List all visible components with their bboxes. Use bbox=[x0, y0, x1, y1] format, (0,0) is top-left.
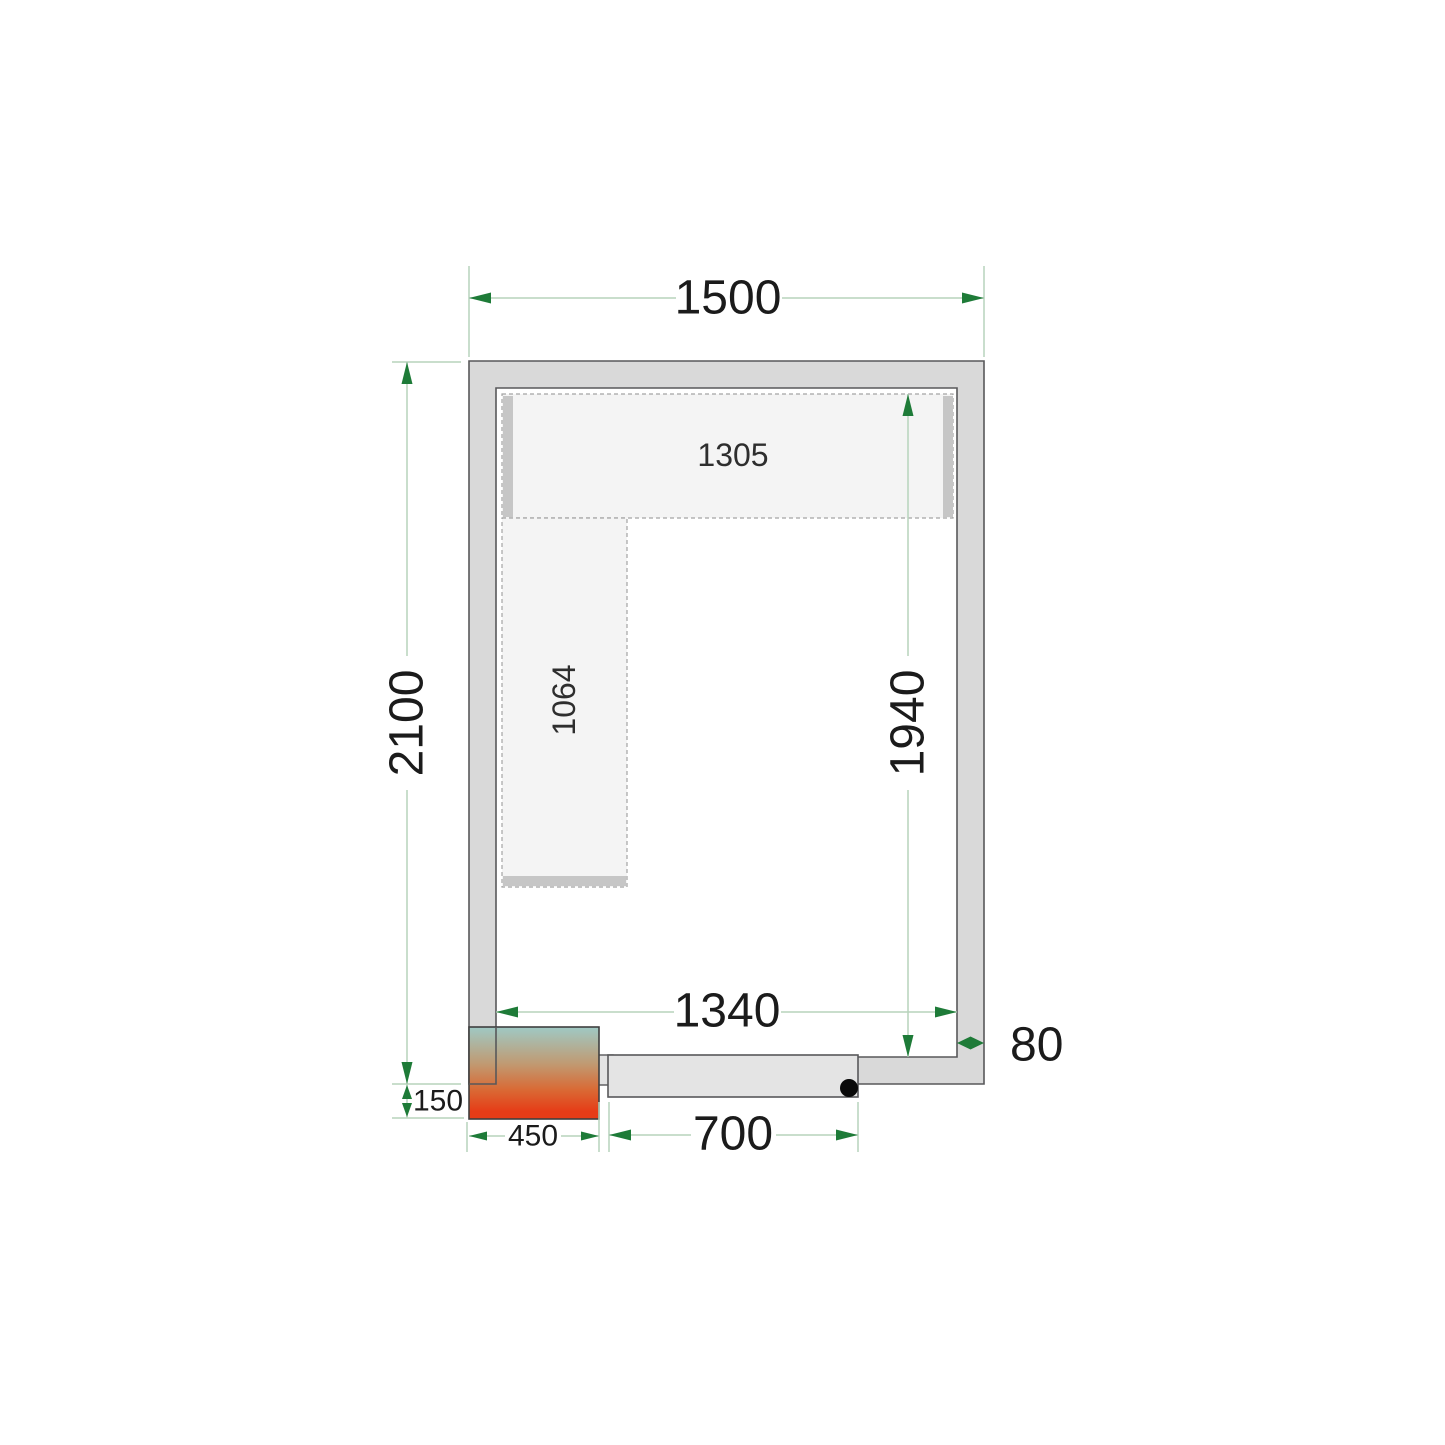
arrowhead-down-icon bbox=[903, 1035, 914, 1057]
arrowhead-right-icon bbox=[962, 293, 984, 304]
arrowhead-right-icon bbox=[581, 1132, 599, 1141]
side-shelf-support-bar bbox=[503, 876, 626, 886]
arrowhead-left-icon bbox=[469, 293, 491, 304]
arrowhead-down-icon bbox=[402, 1103, 412, 1117]
arrowhead-right-icon bbox=[836, 1130, 858, 1141]
arrowhead-up-icon bbox=[402, 1085, 412, 1099]
door-leaf bbox=[608, 1055, 858, 1097]
dim-outer-height-label: 2100 bbox=[381, 670, 434, 777]
arrowhead-down-icon bbox=[402, 1062, 413, 1084]
floor-plan-svg: 1500 2100 1340 1940 80 150 bbox=[0, 0, 1445, 1445]
door-hinge-dot bbox=[840, 1079, 858, 1097]
top-shelf-left-support-bar bbox=[503, 396, 513, 517]
dim-inner-height-label: 1940 bbox=[882, 670, 935, 777]
top-shelf-right-support-bar bbox=[943, 396, 953, 517]
floor-plan-canvas: 1500 2100 1340 1940 80 150 bbox=[0, 0, 1445, 1445]
dim-wall-thickness-label: 80 bbox=[1010, 1019, 1063, 1072]
cooling-unit-block bbox=[469, 1027, 599, 1119]
dim-outer-width-label: 1500 bbox=[675, 272, 782, 325]
dim-inner-width-label: 1340 bbox=[674, 985, 781, 1038]
side-shelf-length-label: 1064 bbox=[546, 664, 582, 735]
arrowhead-right-icon bbox=[935, 1007, 957, 1018]
arrowhead-up-icon bbox=[402, 362, 413, 384]
dim-unit-width-label: 450 bbox=[508, 1120, 558, 1153]
dim-door-width-label: 700 bbox=[693, 1108, 773, 1161]
arrowhead-left-icon bbox=[609, 1130, 631, 1141]
door-assembly bbox=[598, 1055, 858, 1097]
dim-unit-depth-label: 150 bbox=[413, 1085, 463, 1118]
arrowhead-left-icon bbox=[469, 1132, 487, 1141]
cooling-unit bbox=[469, 1027, 599, 1119]
arrowhead-left-icon bbox=[496, 1007, 518, 1018]
top-shelf-length-label: 1305 bbox=[697, 437, 768, 473]
